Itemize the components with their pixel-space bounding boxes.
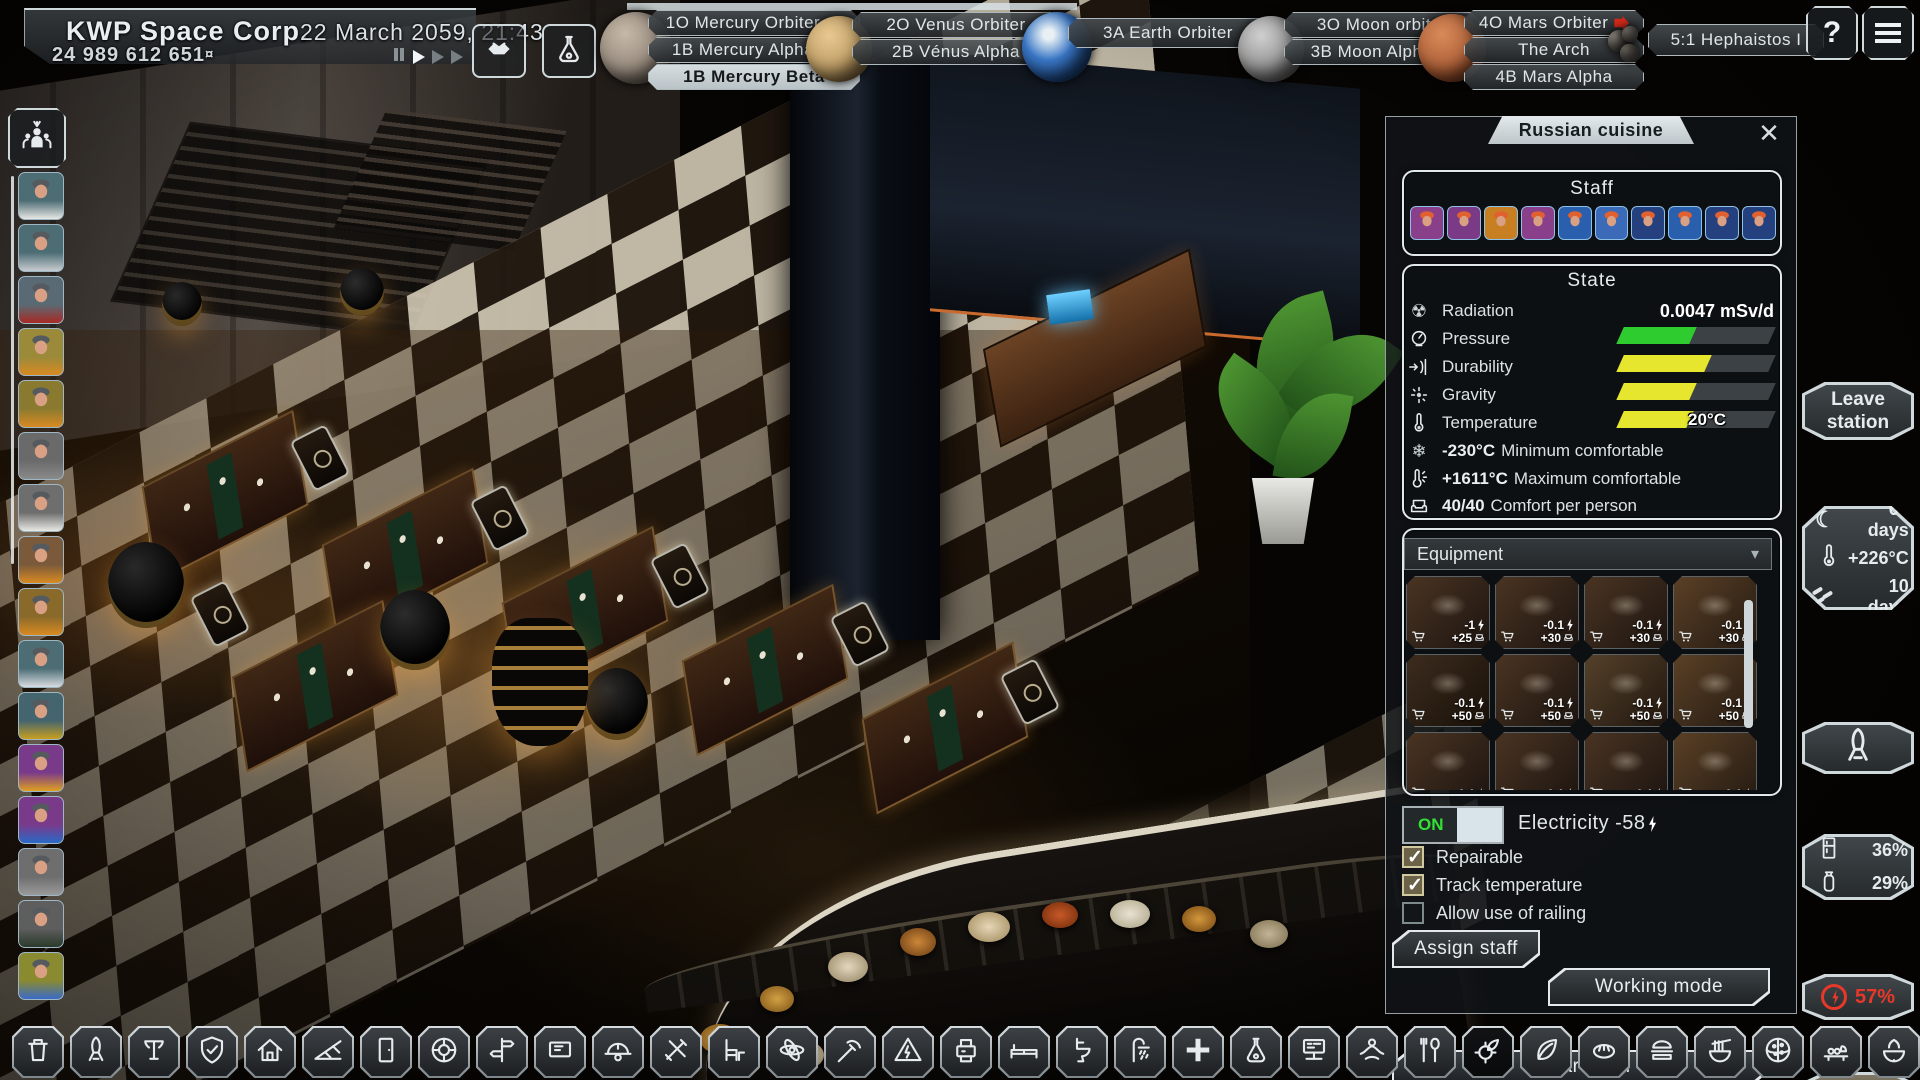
assign-staff-button[interactable]: Assign staff [1392, 930, 1540, 968]
trade-button[interactable] [472, 24, 526, 78]
toolbar-pizzeria[interactable] [1752, 1026, 1804, 1078]
heat-icon [1406, 467, 1432, 491]
pressure-gauge-icon [1406, 327, 1432, 351]
rocket-icon [1838, 726, 1878, 771]
hamburger-icon [1875, 23, 1901, 43]
max-comfort-value: +1611°C [1442, 469, 1508, 488]
crew-portrait[interactable] [18, 848, 64, 896]
gravity-bar [1616, 383, 1697, 400]
tile-comfort: +30 [1719, 631, 1739, 645]
toolbar-lighting[interactable] [128, 1026, 180, 1078]
crew-portrait[interactable] [18, 224, 64, 272]
tab-label: 4B Mars Alpha [1495, 67, 1612, 87]
pause-button[interactable] [394, 48, 406, 66]
night-days-unit: days [1868, 520, 1909, 540]
min-comfort-value: -230°C [1442, 441, 1495, 460]
bread-icon [1589, 1035, 1619, 1070]
fast-forward-button[interactable] [432, 50, 444, 64]
noodles-icon [1705, 1035, 1735, 1070]
tile-power: -1 [1464, 618, 1475, 632]
state-label: Temperature [1442, 413, 1537, 433]
crew-portrait[interactable] [18, 380, 64, 428]
crew-list-button[interactable] [8, 108, 66, 168]
toolbar-laboratory[interactable] [1230, 1026, 1282, 1078]
tile-power: -0.1 [1543, 618, 1564, 632]
equipment-header[interactable]: Equipment ▾ [1404, 538, 1772, 570]
main-menu-button[interactable] [1862, 6, 1914, 60]
comfort-icon [1652, 632, 1663, 642]
crew-portrait[interactable] [18, 952, 64, 1000]
thermometer-icon [1406, 411, 1432, 435]
bolt-icon [1477, 619, 1485, 631]
crew-portrait[interactable] [18, 432, 64, 480]
tab-label: 1O Mercury Orbiter [666, 13, 820, 33]
state-row-comfort: 40/40Comfort per person [1406, 493, 1774, 519]
checkbox-repairable[interactable]: Repairable [1402, 846, 1523, 868]
environment-status-tile[interactable]: ☾ 69 days +226°C 10 days [1802, 506, 1914, 610]
state-header: State [1402, 270, 1782, 292]
tile-power: -0.1 [1454, 696, 1475, 710]
equipment-tile[interactable]: -0.1 [1406, 732, 1490, 790]
staff-avatar[interactable] [1558, 206, 1592, 240]
pizza-icon [1763, 1035, 1793, 1070]
crew-portrait[interactable] [18, 588, 64, 636]
toolbar-robotics[interactable] [766, 1026, 818, 1078]
tile-power: -0.1 [1632, 787, 1653, 790]
asteroid-icon [1608, 26, 1648, 70]
server-screen-icon [1299, 1035, 1329, 1070]
electricity-label: Electricity -58 [1518, 812, 1658, 835]
checkbox-label: Allow use of railing [1436, 903, 1586, 924]
state-label: Gravity [1442, 385, 1496, 405]
temperature-value: 20°C [1688, 410, 1726, 430]
tile-comfort: +50 [1452, 709, 1472, 723]
leave-station-button[interactable]: Leavestation [1802, 382, 1914, 440]
toolbar-beds[interactable] [998, 1026, 1050, 1078]
ramp-icon [313, 1035, 343, 1070]
crew-portrait[interactable] [18, 692, 64, 740]
lamp-icon [139, 1035, 169, 1070]
toolbar-sushi-bar[interactable] [1810, 1026, 1862, 1078]
shower-icon [1125, 1035, 1155, 1070]
state-label: Radiation [1442, 301, 1514, 321]
electricity-toggle[interactable]: ON [1402, 806, 1504, 844]
fastest-forward-button[interactable] [451, 50, 463, 64]
checkbox-icon[interactable] [1402, 874, 1424, 896]
toolbar-showers[interactable] [1114, 1026, 1166, 1078]
crew-portrait[interactable] [18, 900, 64, 948]
equipment-scrollbar[interactable] [1744, 600, 1753, 728]
toolbar-demolish[interactable] [12, 1026, 64, 1078]
tab-label: 5:1 Hephaistos I [1671, 30, 1802, 50]
bolt-icon [1655, 619, 1663, 631]
toolbar-airlocks[interactable] [418, 1026, 470, 1078]
tile-power: -0.1 [1454, 787, 1475, 790]
tab-label: 1B Mercury Alpha [672, 40, 814, 60]
food-percent: 36% [1848, 840, 1908, 861]
crew-portrait[interactable] [18, 744, 64, 792]
tile-power: -0.1 [1543, 787, 1564, 790]
equipment-tile[interactable]: -1+25 [1406, 576, 1490, 649]
help-button[interactable]: ? [1806, 6, 1858, 60]
tab-label: 1B Mercury Beta [683, 67, 825, 87]
bed-icon [1009, 1035, 1039, 1070]
comfort-icon [1474, 632, 1485, 642]
tools-icon [661, 1035, 691, 1070]
tile-power: -0.1 [1543, 696, 1564, 710]
close-icon[interactable]: ✕ [1752, 118, 1786, 148]
checkbox-label: Track temperature [1436, 875, 1582, 896]
tile-power: -0.1 [1632, 696, 1653, 710]
medical-cross-icon [1183, 1035, 1213, 1070]
exterior-temperature: +226°C [1848, 548, 1909, 569]
tab-label: The Arch [1518, 40, 1590, 60]
crew-portrait[interactable] [18, 276, 64, 324]
speed-controls [394, 48, 463, 66]
tile-comfort: +50 [1630, 709, 1650, 723]
money-value: 24 989 612 651 [52, 44, 205, 66]
power-warning-tile[interactable]: 57% [1802, 974, 1914, 1020]
staff-avatar[interactable] [1631, 206, 1665, 240]
working-mode-button[interactable]: Working mode [1548, 968, 1770, 1006]
meditation-icon [1357, 1035, 1387, 1070]
checkbox-label: Repairable [1436, 847, 1523, 868]
crew-portrait[interactable] [18, 484, 64, 532]
crew-portrait[interactable] [18, 536, 64, 584]
toolbar-fabrication[interactable] [940, 1026, 992, 1078]
tab-label: 3A Earth Orbiter [1103, 23, 1233, 43]
snowflake-icon: ❄ [1406, 439, 1432, 463]
flask-icon [1241, 1035, 1271, 1070]
checkbox-icon[interactable] [1402, 846, 1424, 868]
company-name: KWP Space Corp. [66, 16, 309, 47]
tab-label: 4O Mars Orbiter [1479, 13, 1608, 33]
equipment-tile[interactable]: -0.1+50 [1406, 654, 1490, 727]
toggle-on-label: ON [1404, 808, 1457, 842]
leaf-icon [1531, 1035, 1561, 1070]
toolbar-signs[interactable] [476, 1026, 528, 1078]
toolbar-construction[interactable] [592, 1026, 644, 1078]
wall-panel-icon [545, 1035, 575, 1070]
staff-avatar[interactable] [1447, 206, 1481, 240]
signpost-icon [487, 1035, 517, 1070]
staff-avatar[interactable] [1668, 206, 1702, 240]
staff-avatar[interactable] [1521, 206, 1555, 240]
rocket-icon [81, 1035, 111, 1070]
comfort-icon [1474, 710, 1485, 720]
door-icon [371, 1035, 401, 1070]
power-percent: 57% [1855, 986, 1895, 1009]
toolbar-wall-panels[interactable] [534, 1026, 586, 1078]
max-comfort-label: Maximum comfortable [1514, 469, 1681, 488]
bolt-icon [1477, 788, 1485, 790]
bolt-icon [1655, 697, 1663, 709]
bolt-icon [1566, 697, 1574, 709]
state-label: Durability [1442, 357, 1513, 377]
bolt-icon [1655, 788, 1663, 790]
airlock-icon [429, 1035, 459, 1070]
bolt-icon [1744, 788, 1752, 790]
toolbar-farming[interactable] [1520, 1026, 1572, 1078]
equipment-tile[interactable]: -0.1 [1495, 732, 1579, 790]
checkbox-track-temperature[interactable]: Track temperature [1402, 874, 1582, 896]
toilet-icon [1067, 1035, 1097, 1070]
bolt-icon [1566, 619, 1574, 631]
gear-leaf-icon [1473, 1035, 1503, 1070]
research-button[interactable] [542, 24, 596, 78]
staff-avatar[interactable] [1595, 206, 1629, 240]
toolbar-ramps[interactable] [302, 1026, 354, 1078]
toolbar-furniture[interactable] [708, 1026, 760, 1078]
flask-icon [553, 33, 585, 70]
fabricator-icon [951, 1035, 981, 1070]
radiation-value: 0.0047 mSv/d [1660, 301, 1774, 322]
gravity-icon [1406, 383, 1432, 407]
staff-avatar[interactable] [1484, 206, 1518, 240]
checkbox-icon[interactable] [1402, 902, 1424, 924]
tile-power: -0.1 [1721, 618, 1742, 632]
sushi-icon [1821, 1035, 1851, 1070]
burger-icon [1647, 1035, 1677, 1070]
tab-hephaistos[interactable]: 5:1 Hephaistos I [1648, 24, 1824, 56]
tile-comfort: +25 [1452, 631, 1472, 645]
crew-portrait[interactable] [18, 172, 64, 220]
durability-bar [1616, 355, 1712, 372]
handshake-icon [483, 33, 515, 70]
thermometer-icon [1808, 543, 1842, 574]
staff-avatars [1410, 206, 1776, 240]
tile-comfort: +50 [1541, 709, 1561, 723]
tile-power: -0.1 [1721, 787, 1742, 790]
staff-avatar[interactable] [1705, 206, 1739, 240]
rocket-button[interactable] [1802, 722, 1914, 774]
toolbar-maintenance[interactable] [650, 1026, 702, 1078]
toggle-knob [1457, 808, 1502, 842]
crew-icon [20, 119, 54, 158]
house-icon [255, 1035, 285, 1070]
toolbar-canteen[interactable] [1404, 1026, 1456, 1078]
staff-header: Staff [1402, 178, 1782, 200]
staff-avatar[interactable] [1410, 206, 1444, 240]
min-comfort-label: Minimum comfortable [1501, 441, 1664, 460]
equipment-tile[interactable]: -0.1+30 [1584, 576, 1668, 649]
equipment-tile[interactable]: -0.1+30 [1495, 576, 1579, 649]
tab-label: 2B Vénus Alpha [892, 42, 1020, 62]
comfort-value: 40/40 [1442, 496, 1485, 515]
state-row-max-comfort: +1611°CMaximum comfortable [1406, 466, 1774, 492]
room-panel-title: Russian cuisine [1488, 116, 1694, 144]
toolbar-medical[interactable] [1172, 1026, 1224, 1078]
toolbar-mining[interactable] [824, 1026, 876, 1078]
checkbox-allow-railing[interactable]: Allow use of railing [1402, 902, 1586, 924]
toolbar-burger-bar[interactable] [1636, 1026, 1688, 1078]
durability-icon [1406, 355, 1432, 379]
top-progress-strip [627, 3, 1077, 10]
atom-icon [777, 1035, 807, 1070]
toolbar-sanitation[interactable] [1056, 1026, 1108, 1078]
play-button[interactable] [413, 50, 425, 64]
state-row-min-comfort: ❄ -230°CMinimum comfortable [1406, 438, 1774, 464]
toolbar-rooms[interactable] [244, 1026, 296, 1078]
equipment-tile[interactable]: -0.1 [1584, 732, 1668, 790]
pickaxe-icon [835, 1035, 865, 1070]
tile-comfort: +30 [1541, 631, 1561, 645]
comfort-icon [1563, 710, 1574, 720]
chevron-down-icon: ▾ [1751, 544, 1759, 564]
crew-portrait[interactable] [18, 640, 64, 688]
equipment-header-label: Equipment [1417, 544, 1503, 565]
tile-comfort: +30 [1630, 631, 1650, 645]
comfort-icon [1652, 710, 1663, 720]
equipment-grid: -1+25 -0.1+30 -0.1+30 -0.1+30 -0.1+50 -0… [1406, 576, 1758, 790]
supplies-tile[interactable]: 36% 29% [1802, 834, 1914, 900]
toolbar-recreation[interactable] [1346, 1026, 1398, 1078]
question-icon: ? [1823, 16, 1841, 50]
shield-check-icon [197, 1035, 227, 1070]
tab-label: 2O Venus Orbiter [886, 15, 1025, 35]
hardhat-icon [603, 1035, 633, 1070]
bolt-icon [1477, 697, 1485, 709]
toolbar-rocket[interactable] [70, 1026, 122, 1078]
power-warning-icon [1821, 984, 1847, 1010]
comfort-label: Comfort per person [1491, 496, 1637, 515]
toolbar-noodle-bar[interactable] [1694, 1026, 1746, 1078]
tile-comfort: +50 [1719, 709, 1739, 723]
radiation-icon: ☢ [1406, 299, 1432, 323]
crew-portrait[interactable] [18, 328, 64, 376]
trash-icon [23, 1035, 53, 1070]
toolbar-food-processing[interactable] [1462, 1026, 1514, 1078]
toolbar-bakery[interactable] [1578, 1026, 1630, 1078]
temperature-bar [1616, 411, 1693, 428]
pressure-bar [1616, 327, 1697, 344]
bolt-icon [1648, 816, 1658, 832]
comfort-icon [1563, 632, 1574, 642]
toolbar-security[interactable] [186, 1026, 238, 1078]
toolbar-doors[interactable] [360, 1026, 412, 1078]
crew-portrait[interactable] [18, 796, 64, 844]
location-group-hephaistos: 5:1 Hephaistos I [1648, 24, 1824, 56]
toolbar-power[interactable] [882, 1026, 934, 1078]
equipment-tile[interactable]: -0.1 [1673, 732, 1757, 790]
crew-scroll-indicator[interactable] [11, 176, 14, 564]
equipment-tile[interactable]: -0.1+50 [1495, 654, 1579, 727]
staff-avatar[interactable] [1742, 206, 1776, 240]
state-row-radiation: ☢ Radiation 0.0047 mSv/d [1406, 298, 1774, 324]
currency-icon: ¤ [205, 46, 214, 63]
toolbar-computers[interactable] [1288, 1026, 1340, 1078]
toolbar-salad-bar[interactable] [1868, 1026, 1920, 1078]
equipment-tile[interactable]: -0.1+50 [1584, 654, 1668, 727]
tile-power: -0.1 [1721, 696, 1742, 710]
armchair-icon [1406, 494, 1432, 518]
build-toolbar [12, 1026, 1912, 1078]
salad-bowl-icon [1879, 1035, 1909, 1070]
money-balance: 24 989 612 651¤ [52, 44, 214, 67]
state-label: Pressure [1442, 329, 1510, 349]
bolt-icon [1566, 788, 1574, 790]
cutlery-icon [1415, 1035, 1445, 1070]
chair-icon [719, 1035, 749, 1070]
tab-label: 3B Moon Alpha [1311, 42, 1433, 62]
gas-percent: 29% [1848, 873, 1908, 894]
tile-power: -0.1 [1632, 618, 1653, 632]
electric-hazard-icon [893, 1035, 923, 1070]
